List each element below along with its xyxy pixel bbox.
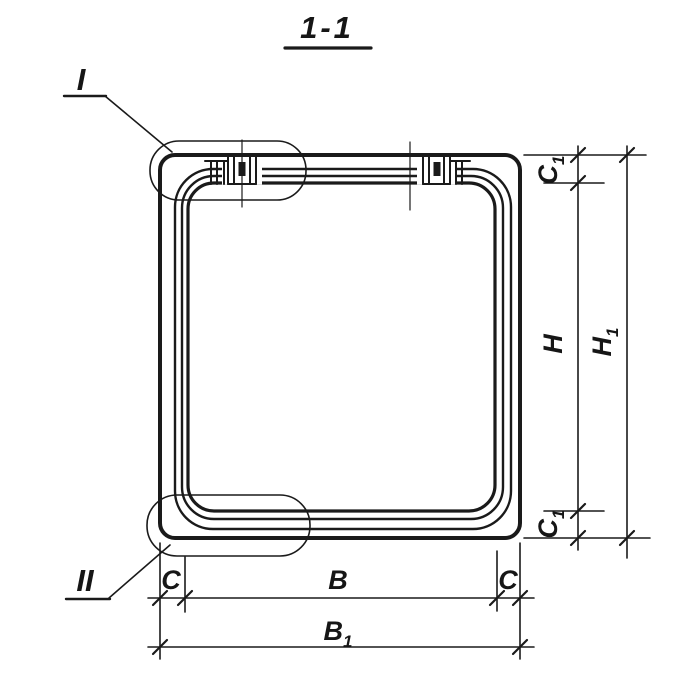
section-drawing: I II C1 H H1 C1: [0, 0, 700, 700]
section-outer-contour: [160, 155, 520, 538]
drawing-sheet: I II C1 H H1 C1: [0, 0, 700, 700]
dim-h1-label: H1: [587, 328, 622, 357]
dimension-bottom-group: C B C B1: [148, 543, 534, 659]
dim-b1-label: B1: [324, 616, 353, 651]
detail-ii-label: II: [76, 563, 95, 598]
detail-i-leader: [105, 96, 172, 152]
dim-c1-bottom-label: C1: [533, 510, 568, 539]
detail-callout-ii: II: [66, 545, 170, 599]
detail-ellipse-bottom-left: [147, 495, 310, 556]
detail-callout-i: I: [64, 62, 172, 152]
section-title-label: 1-1: [300, 10, 354, 45]
inner-wall-line-outer: [175, 169, 511, 529]
dim-h-label: H: [538, 334, 568, 354]
inner-wall-line-middle: [182, 176, 503, 519]
dim-c-right-label: C: [498, 565, 518, 595]
dimension-right-group: C1 H H1 C1: [524, 146, 650, 558]
detail-i-label: I: [77, 62, 87, 97]
dim-c-left-label: C: [161, 565, 181, 595]
embedded-insert-right: [417, 155, 470, 185]
dim-c1-top-label: C1: [533, 156, 568, 185]
section-title: 1-1: [285, 10, 371, 48]
inner-wall-line-inner: [188, 183, 495, 511]
dim-b-label: B: [328, 565, 348, 595]
anchor-mark-right: [434, 162, 441, 176]
